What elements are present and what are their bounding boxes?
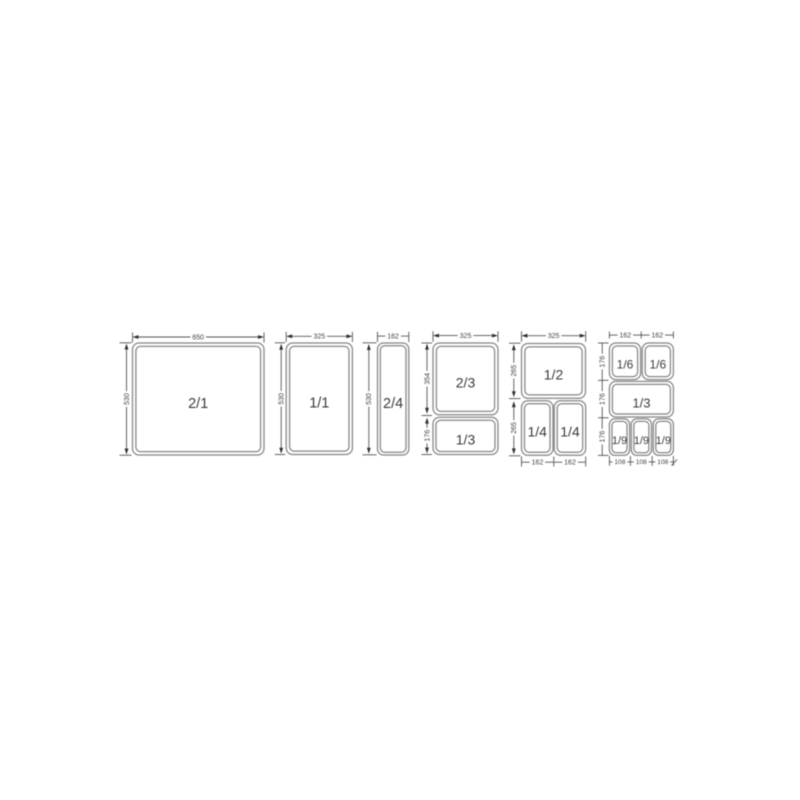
svg-text:162: 162 (387, 333, 399, 340)
svg-text:162: 162 (532, 460, 544, 467)
svg-text:2/1: 2/1 (188, 396, 208, 412)
svg-text:176: 176 (600, 431, 607, 443)
svg-text:176: 176 (600, 356, 607, 368)
svg-text:2/3: 2/3 (456, 375, 476, 391)
svg-text:108: 108 (614, 459, 625, 466)
svg-text:265: 265 (511, 365, 518, 377)
svg-text:162: 162 (651, 332, 663, 339)
svg-text:108: 108 (636, 459, 647, 466)
svg-text:530: 530 (124, 393, 131, 405)
svg-text:176: 176 (424, 430, 431, 442)
svg-text:2/4: 2/4 (383, 396, 403, 412)
svg-text:108: 108 (657, 459, 668, 466)
svg-text:530: 530 (366, 393, 373, 405)
svg-text:1/9: 1/9 (656, 435, 671, 447)
svg-text:1/3: 1/3 (456, 432, 476, 448)
svg-text:265: 265 (511, 422, 518, 434)
svg-text:1/9: 1/9 (634, 435, 649, 447)
svg-text:1/6: 1/6 (617, 358, 634, 372)
svg-text:1/6: 1/6 (649, 358, 666, 372)
svg-text:176: 176 (600, 393, 607, 405)
svg-text:1/3: 1/3 (632, 395, 650, 410)
svg-text:1/2: 1/2 (544, 367, 564, 383)
svg-text:162: 162 (619, 332, 631, 339)
svg-text:1/9: 1/9 (612, 435, 627, 447)
svg-text:1/4: 1/4 (527, 424, 547, 440)
svg-text:162: 162 (564, 460, 576, 467)
svg-text:354: 354 (424, 373, 431, 385)
svg-text:325: 325 (313, 334, 325, 341)
svg-text:1/1: 1/1 (309, 396, 329, 412)
svg-text:325: 325 (460, 333, 472, 340)
svg-text:650: 650 (192, 334, 204, 341)
svg-text:530: 530 (279, 393, 286, 405)
svg-text:1/4: 1/4 (560, 424, 580, 440)
svg-text:325: 325 (548, 333, 560, 340)
